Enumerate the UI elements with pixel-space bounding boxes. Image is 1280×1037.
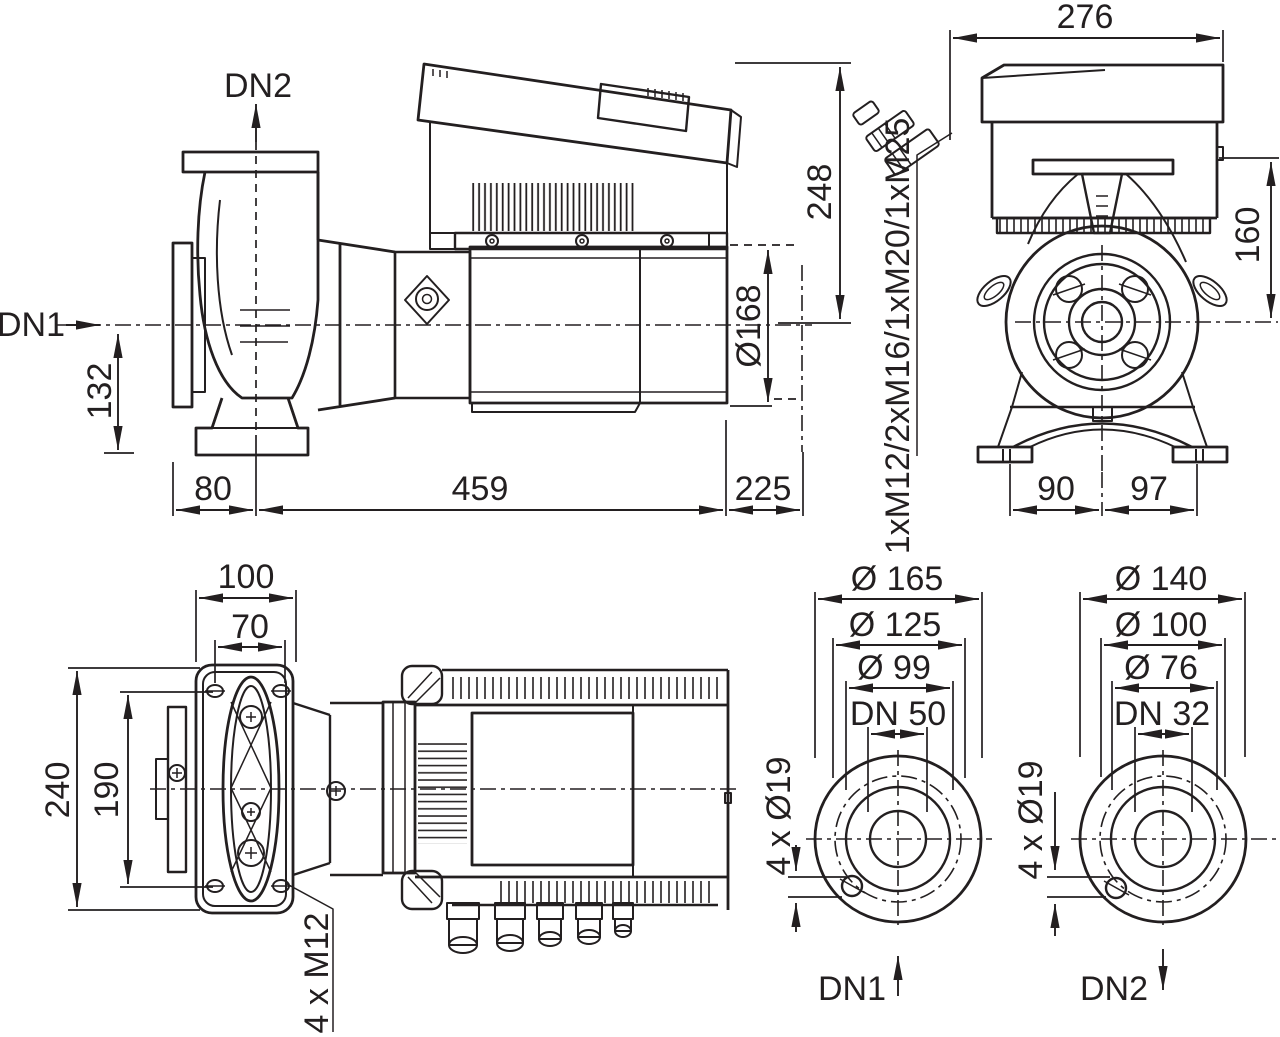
svg-text:97: 97 bbox=[1130, 470, 1168, 508]
plan-view: 100 70 240 190 4 x M12 bbox=[39, 558, 740, 1033]
dim-90-97: 90 97 bbox=[1010, 464, 1197, 516]
plan-motor-flange bbox=[383, 702, 415, 873]
dim-dn1-boltholes: 4 x Ø19 bbox=[760, 756, 846, 932]
svg-text:225: 225 bbox=[735, 470, 792, 508]
heatsink-fins bbox=[472, 183, 634, 231]
svg-text:190: 190 bbox=[88, 762, 126, 819]
svg-text:Ø 165: Ø 165 bbox=[851, 560, 944, 598]
electronics-module-lid bbox=[418, 64, 731, 163]
svg-text:Ø168: Ø168 bbox=[730, 284, 768, 367]
dim-dn2-boltholes: 4 x Ø19 bbox=[1012, 760, 1110, 936]
svg-text:80: 80 bbox=[194, 470, 232, 508]
plan-cable-glands bbox=[447, 903, 633, 953]
volute-casing bbox=[198, 172, 318, 398]
svg-text:100: 100 bbox=[218, 558, 275, 596]
dim-dn32: DN 32 bbox=[1114, 695, 1210, 812]
svg-text:Ø 100: Ø 100 bbox=[1115, 606, 1208, 644]
svg-text:240: 240 bbox=[39, 762, 77, 819]
svg-text:132: 132 bbox=[81, 363, 119, 420]
svg-text:160: 160 bbox=[1229, 207, 1267, 264]
pump-dimensional-drawing: DN2 DN1 132 80 459 225 bbox=[0, 0, 1280, 1037]
svg-text:4 x M12: 4 x M12 bbox=[298, 913, 336, 1034]
plan-module-ticks-bottom bbox=[500, 881, 710, 903]
flange-view-dn2: Ø 140 Ø 100 Ø 76 DN 32 4 x Ø19 bbox=[1012, 560, 1279, 1008]
svg-text:DN 32: DN 32 bbox=[1114, 695, 1210, 733]
svg-text:Ø 125: Ø 125 bbox=[849, 606, 942, 644]
svg-text:Ø 76: Ø 76 bbox=[1124, 649, 1198, 687]
svg-text:70: 70 bbox=[231, 608, 269, 646]
flange-dn2-circles bbox=[1071, 750, 1279, 928]
pump-dimensional-drawing-page: DN2 DN1 132 80 459 225 bbox=[0, 0, 1280, 1037]
svg-text:4 x Ø19: 4 x Ø19 bbox=[760, 756, 798, 875]
svg-text:276: 276 bbox=[1057, 0, 1114, 36]
top-bracket bbox=[1033, 160, 1173, 174]
plan-fins bbox=[418, 743, 467, 844]
cable-gland-spec: 1xM12/2xM16/1xM20/1xM25 bbox=[879, 118, 952, 555]
plan-module bbox=[415, 670, 731, 910]
svg-text:DN2: DN2 bbox=[1080, 970, 1148, 1008]
flange-view-dn1: Ø 165 Ø 125 Ø 99 DN 50 4 x Ø19 bbox=[760, 560, 992, 1008]
svg-text:459: 459 bbox=[452, 470, 509, 508]
side-view: DN2 DN1 132 80 459 225 bbox=[0, 63, 952, 554]
side-dn2-label: DN2 bbox=[224, 67, 292, 105]
svg-text:248: 248 bbox=[801, 164, 839, 221]
foot-bolt-callout: 4 x M12 bbox=[287, 884, 336, 1033]
svg-text:1xM12/2xM16/1xM20/1xM25: 1xM12/2xM16/1xM20/1xM25 bbox=[879, 118, 917, 555]
svg-text:Ø 140: Ø 140 bbox=[1115, 560, 1208, 598]
svg-text:DN 50: DN 50 bbox=[850, 695, 946, 733]
dim-132: 132 bbox=[81, 334, 134, 453]
dim-d125: Ø 125 bbox=[833, 606, 965, 778]
flange-dn1-port: DN1 bbox=[818, 956, 898, 1008]
side-dn1-label: DN1 bbox=[0, 306, 65, 344]
dim-248: 248 bbox=[735, 63, 851, 323]
plan-module-ticks-top bbox=[452, 677, 722, 699]
lantern bbox=[318, 172, 395, 410]
svg-text:4 x Ø19: 4 x Ø19 bbox=[1012, 760, 1050, 879]
dim-160: 160 bbox=[1219, 158, 1279, 318]
discharge-flange bbox=[183, 152, 318, 172]
pump-foot bbox=[196, 398, 308, 455]
svg-text:DN1: DN1 bbox=[818, 970, 886, 1008]
end-electronics-box bbox=[982, 65, 1223, 122]
dim-80-459-225: 80 459 225 bbox=[173, 265, 803, 516]
svg-text:90: 90 bbox=[1037, 470, 1075, 508]
svg-text:Ø 99: Ø 99 bbox=[857, 649, 931, 687]
vent-valve bbox=[405, 276, 449, 324]
flange-dn2-port: DN2 bbox=[1080, 949, 1163, 1008]
flange-dn1-circles bbox=[806, 750, 992, 930]
dim-276: 276 bbox=[950, 0, 1223, 140]
